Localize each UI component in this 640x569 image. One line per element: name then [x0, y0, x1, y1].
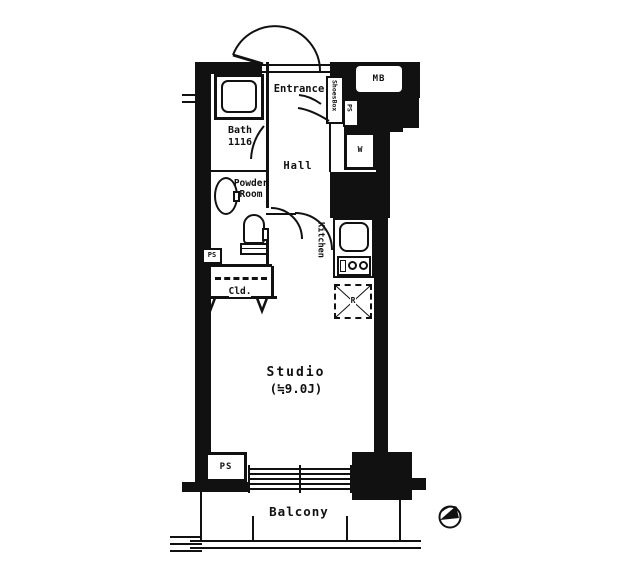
toilet-tank [240, 243, 268, 255]
studio-size-label: (≒9.0J) [226, 383, 366, 396]
pipe-tick-2 [182, 101, 196, 103]
hall-label: Hall [278, 161, 318, 172]
balcony-side-left [200, 490, 202, 542]
entrance-threshold-2 [262, 71, 330, 73]
wall-right-corner [403, 62, 419, 128]
toilet-tank-line [242, 248, 266, 249]
partition-closet-right [271, 266, 274, 298]
entrance-threshold-1 [262, 64, 330, 66]
balcony-hatch-1 [170, 536, 202, 538]
partition-powder-closet [211, 264, 272, 267]
closet-hanger-pipe [215, 277, 267, 280]
kitchen-sink [339, 222, 369, 252]
studio-label: Studio [226, 366, 366, 379]
studio-door-arc [295, 213, 332, 250]
balcony-rail-outer [190, 540, 421, 542]
meter-box-label: MB [356, 75, 402, 84]
balcony-post-2 [346, 516, 348, 542]
wall-left [195, 62, 211, 490]
entrance-step-arc-2 [298, 108, 329, 121]
pillar-stub [412, 478, 426, 490]
balcony-side-right [399, 500, 401, 542]
balcony-post-1 [252, 516, 254, 542]
powder-room-label-2: Room [225, 190, 277, 200]
balcony-hatch-2 [170, 543, 202, 545]
pipe-space-left-label: PS [202, 252, 222, 259]
bath-size-label: 1116 [214, 138, 266, 148]
kitchen-label: Kitchen [316, 222, 325, 258]
burner-right [359, 261, 368, 270]
refrigerator-label: R [334, 297, 372, 305]
entrance-label: Entrance [263, 84, 335, 95]
washer-space-label: W [344, 146, 376, 154]
bathtub-inner [221, 80, 257, 113]
partition-bath-powder [211, 170, 267, 172]
wall-right-column [374, 218, 388, 452]
balcony-rail-inner [190, 547, 421, 549]
north-arrow-icon [440, 506, 461, 528]
window-jamb-left [248, 465, 250, 493]
duct-shaft [330, 172, 390, 218]
wall-beside-washer [376, 132, 390, 172]
bath-label: Bath [214, 126, 266, 136]
hall-right-line [329, 124, 331, 172]
balcony-hatch-3 [170, 550, 202, 552]
balcony-label: Balcony [229, 506, 369, 519]
floor-plan: MB PS ShoesBox W PS R PS [0, 0, 640, 569]
wall-bottom-left [182, 482, 250, 492]
stove-knob [340, 260, 346, 272]
closet-label: Cld. [214, 287, 266, 297]
burner-left [348, 261, 357, 270]
closet-door-pivot-right [257, 298, 267, 311]
entrance-step-arc-1 [299, 95, 321, 104]
pipe-space-top-label: PS [346, 104, 353, 112]
window-jamb-right [350, 465, 352, 493]
pipe-tick-1 [182, 94, 196, 96]
powder-room-label-1: Powder [225, 179, 277, 189]
toilet-handle [262, 228, 269, 241]
window-mullion-center [299, 465, 301, 493]
pillar [352, 452, 412, 500]
pipe-space-bottom-label: PS [205, 463, 247, 472]
hall-studio-stub [266, 213, 296, 215]
